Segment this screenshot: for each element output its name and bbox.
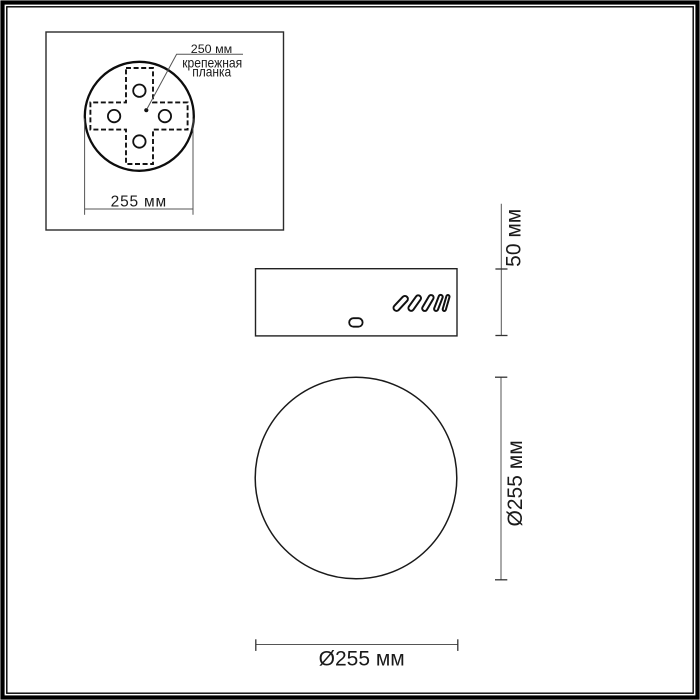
svg-text:Ø255 мм: Ø255 мм bbox=[319, 647, 405, 670]
svg-text:Ø255 мм: Ø255 мм bbox=[504, 440, 527, 526]
svg-text:255 мм: 255 мм bbox=[111, 193, 167, 210]
svg-text:планка: планка bbox=[192, 64, 231, 79]
svg-text:250 мм: 250 мм bbox=[191, 42, 233, 56]
svg-text:50 мм: 50 мм bbox=[503, 209, 526, 267]
